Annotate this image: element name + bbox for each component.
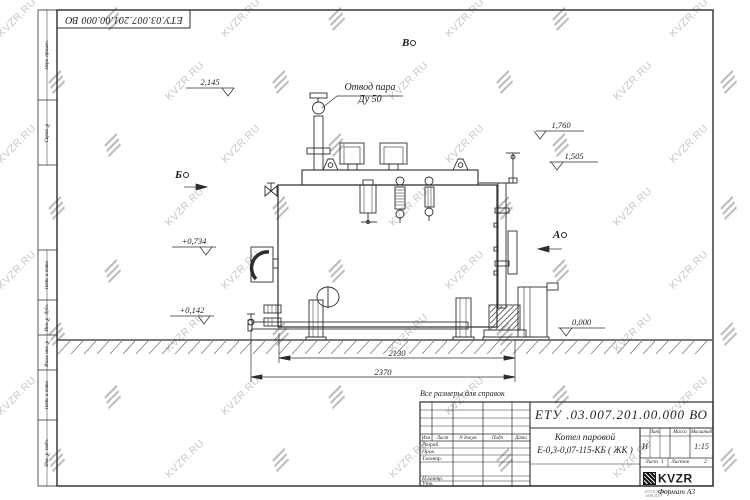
- drawing-linework: [0, 0, 750, 500]
- sign-row-tkontr: Т.контр.: [422, 457, 442, 463]
- dimension-2370: 2370: [251, 368, 515, 377]
- titleblock-product-name-2: Е-0,3-0,07-115-КБ ( ЖК ): [532, 446, 638, 455]
- dimension-2130: 2130: [279, 349, 515, 358]
- elevation-1505: 1,505: [551, 152, 597, 161]
- top-hatches: [340, 143, 407, 170]
- margin-label-sprav-no: Справ. №: [38, 100, 57, 165]
- corner-stamp: ЕТУ.03.007.201.00.000 ВО: [57, 10, 190, 28]
- mass-header: Масса: [670, 430, 690, 435]
- margin-label-podp-data-2: Подп. и дата: [38, 370, 57, 420]
- water-level-gauges: [395, 177, 434, 223]
- elevation-0000: 0,000: [558, 318, 605, 327]
- drawing-sheet: KVZR.RUKVZR.RUKVZR.RUKVZR.RUKVZR.RUKVZR.…: [0, 0, 750, 500]
- steam-outlet-label-line2: Ду 50: [337, 95, 403, 105]
- elevation-plus0142: +0,142: [170, 306, 214, 315]
- margin-label-inv-podl: Инв. № подл.: [38, 420, 57, 486]
- steam-outlet-label-line1: Отвод пара: [337, 83, 403, 93]
- margin-label-inv-dubl: Инв. № дубл.: [38, 300, 57, 335]
- lifting-lugs: [323, 159, 468, 170]
- view-label-v: В: [402, 38, 416, 49]
- elevation-plus0734: +0,734: [172, 237, 216, 246]
- margin-label-vzam-inv: Взам. инв. №: [38, 335, 57, 370]
- change-header-izm: Изм: [420, 436, 432, 441]
- safety-valve: [360, 180, 377, 224]
- sign-row-razrab: Разраб.: [422, 443, 440, 449]
- sign-row-prov: Пров.: [422, 450, 435, 456]
- lit-value: И: [640, 443, 650, 451]
- sheet-value: 1: [661, 460, 664, 466]
- margin-label-podp-data-1: Подп. и дата: [38, 250, 57, 300]
- supports-and-pipe: [248, 298, 474, 340]
- scale-header: Масштаб: [690, 430, 713, 435]
- titleblock-doc-number: ЕТУ .03.007.201.00.000 ВО: [530, 408, 713, 421]
- corner-doc-number: ЕТУ.03.007.201.00.000 ВО: [65, 14, 183, 25]
- format-label: Формат А3: [640, 488, 713, 496]
- change-header-podp: Подп: [483, 436, 512, 441]
- sheet-label: Лист: [645, 460, 658, 466]
- change-header-data: Дата: [512, 436, 530, 441]
- view-circle: [561, 232, 567, 238]
- sign-row-utv: Утв.: [422, 482, 433, 488]
- fan-unit: [483, 283, 558, 340]
- view-circle: [183, 172, 189, 178]
- elevation-1760: 1,760: [538, 121, 584, 130]
- view-label-a: А: [553, 230, 567, 241]
- kvzr-logo-text: KVZR: [658, 471, 693, 485]
- view-label-b: Б: [175, 170, 189, 181]
- sheets-label: Листов: [671, 460, 689, 466]
- dimension-lines: [170, 88, 605, 382]
- margin-label-perv-primen: Перв. примен.: [38, 10, 57, 100]
- reference-note: Все размеры для справок: [420, 390, 505, 398]
- boiler-body: [278, 170, 514, 327]
- lit-header: Лит.: [640, 430, 670, 435]
- scale-value: 1:15: [690, 443, 713, 451]
- titleblock-product-name-1: Котел паровой: [532, 434, 638, 444]
- change-header-list: Лист: [432, 436, 453, 441]
- kvzr-logo-icon: [643, 472, 656, 485]
- front-sight-glass: [317, 286, 339, 308]
- view-circle: [410, 40, 416, 46]
- sheets-value: 2: [704, 460, 707, 466]
- elevation-2145: 2,145: [188, 78, 232, 87]
- change-header-ndokum: N докум: [453, 436, 483, 441]
- top-right-valve: [506, 153, 520, 183]
- left-wall-fittings: [247, 183, 281, 326]
